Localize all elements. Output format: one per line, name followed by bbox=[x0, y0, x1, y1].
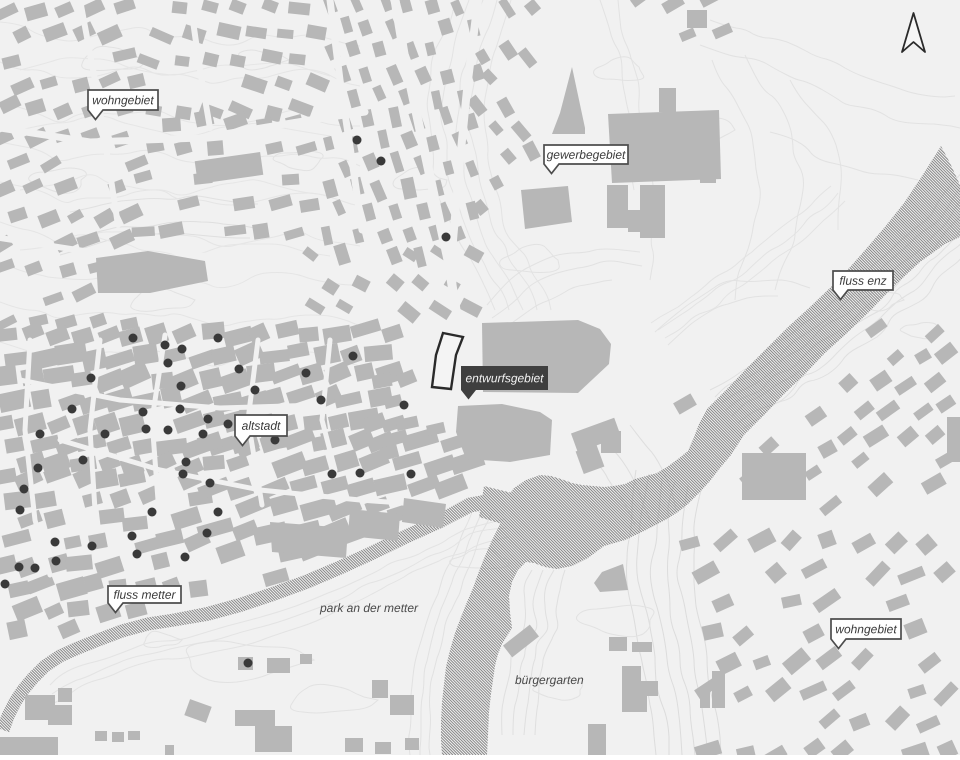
svg-text:fluss metter: fluss metter bbox=[113, 588, 176, 602]
svg-text:altstadt: altstadt bbox=[242, 419, 281, 433]
svg-text:bürgergarten: bürgergarten bbox=[515, 673, 584, 687]
svg-text:fluss enz: fluss enz bbox=[839, 274, 886, 288]
svg-text:entwurfsgebiet: entwurfsgebiet bbox=[465, 371, 544, 385]
svg-text:park an der metter: park an der metter bbox=[319, 601, 419, 615]
svg-text:wohngebiet: wohngebiet bbox=[835, 622, 897, 636]
svg-text:gewerbegebiet: gewerbegebiet bbox=[547, 148, 626, 162]
svg-text:wohngebiet: wohngebiet bbox=[92, 93, 154, 107]
